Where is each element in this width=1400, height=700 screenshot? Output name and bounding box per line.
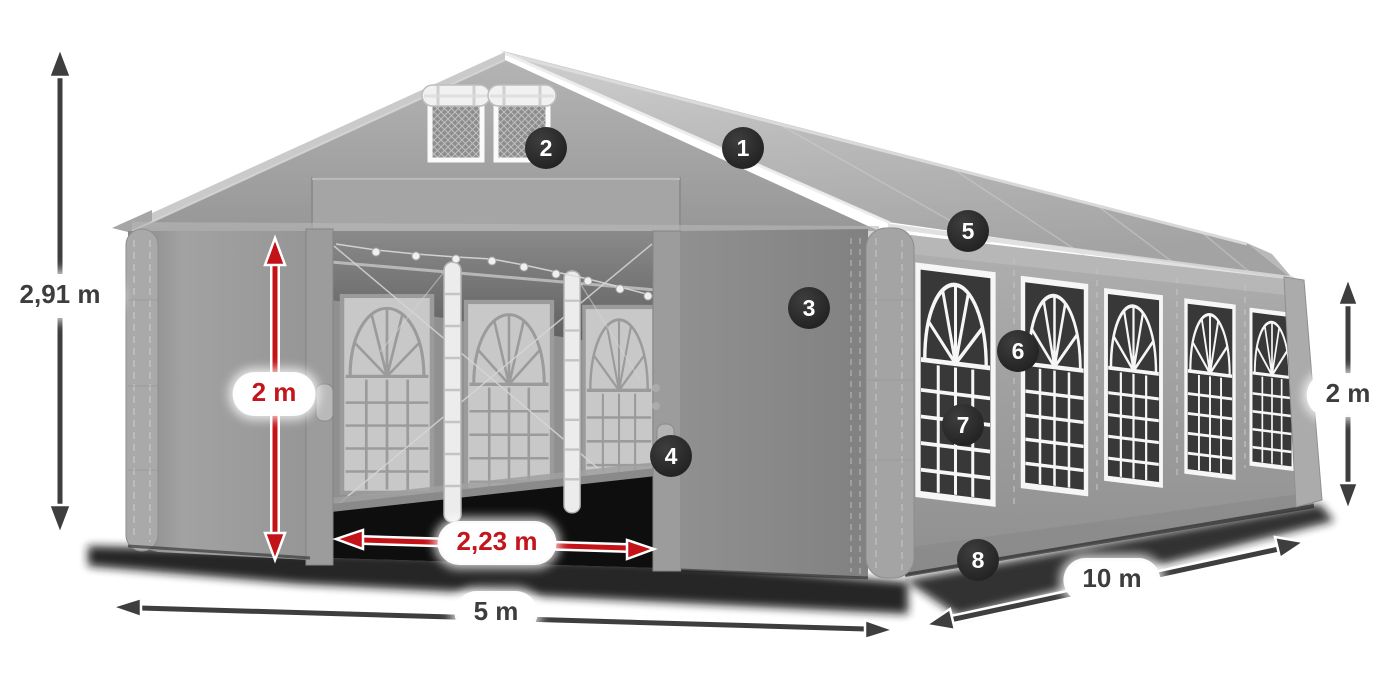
interior-pole-left — [444, 262, 461, 522]
entrance-pole-right — [653, 231, 681, 571]
callout-badge-5[interactable]: 5 — [947, 210, 989, 252]
callout-badge-4[interactable]: 4 — [650, 435, 692, 477]
dimension-value: 10 m — [1082, 563, 1141, 593]
side-window-2 — [1023, 279, 1086, 493]
front-right-panel — [681, 229, 868, 578]
side-window-4 — [1186, 301, 1234, 477]
dimension-value: 2 m — [252, 377, 297, 407]
callout-badge-1[interactable]: 1 — [722, 127, 764, 169]
dimension-label-side-length: 10 m — [1066, 561, 1157, 599]
dimension-label-side-wall-height: 2 m — [1310, 376, 1387, 414]
front-right-corner-strip — [866, 228, 914, 578]
entrance-interior — [331, 231, 656, 568]
dimension-value: 2,23 m — [457, 526, 538, 556]
callout-badge-6[interactable]: 6 — [997, 330, 1039, 372]
dimension-label-total-height: 2,91 m — [4, 277, 117, 315]
side-window-3 — [1106, 291, 1161, 485]
tent-diagram: 2,91 m 2 m 2,23 m 5 m 10 m 2 m 1 2 3 4 5… — [0, 0, 1400, 700]
interior-window-2 — [466, 302, 552, 504]
gable-vent-left — [422, 85, 490, 160]
callout-badge-2[interactable]: 2 — [525, 127, 567, 169]
dimension-label-entrance-width: 2,23 m — [441, 524, 554, 562]
front-left-corner-strip — [126, 229, 158, 551]
entrance-handle-left — [316, 384, 333, 421]
dimension-label-inner-height: 2 m — [236, 375, 313, 413]
callout-badge-3[interactable]: 3 — [788, 287, 830, 329]
tent-illustration — [0, 0, 1400, 700]
callout-badge-7[interactable]: 7 — [942, 404, 984, 446]
interior-pole-right — [564, 271, 580, 513]
side-window-1 — [918, 266, 993, 503]
dimension-value: 2,91 m — [20, 279, 101, 309]
dimension-label-front-width: 5 m — [458, 594, 535, 632]
dimension-value: 5 m — [474, 596, 519, 626]
dimension-value: 2 m — [1326, 378, 1371, 408]
callout-badge-8[interactable]: 8 — [957, 539, 999, 581]
